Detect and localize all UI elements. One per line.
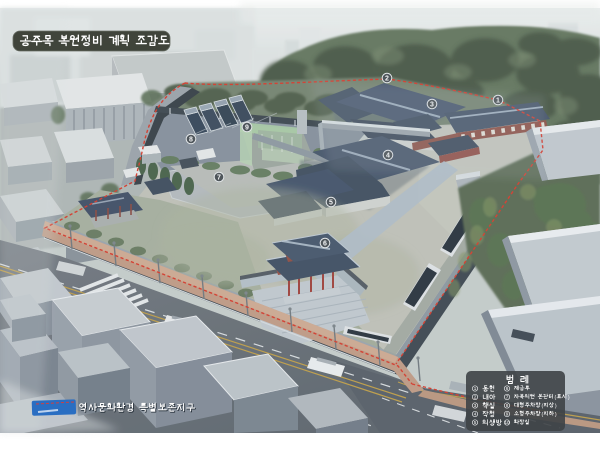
svg-text:9: 9 — [506, 412, 509, 417]
svg-text:1: 1 — [474, 386, 477, 391]
svg-text:2: 2 — [474, 395, 477, 400]
svg-text:3: 3 — [474, 403, 477, 408]
svg-text:(: ( — [542, 412, 544, 418]
svg-text:(: ( — [542, 404, 544, 410]
svg-text:): ) — [568, 395, 570, 401]
svg-text:5: 5 — [474, 420, 477, 425]
svg-text:6: 6 — [506, 386, 509, 391]
svg-text:): ) — [555, 412, 557, 418]
svg-text:): ) — [555, 404, 557, 410]
svg-text:8: 8 — [506, 403, 509, 408]
svg-text:7: 7 — [506, 395, 509, 400]
svg-text:10: 10 — [504, 420, 510, 425]
svg-text:4: 4 — [474, 412, 477, 417]
svg-text:(: ( — [555, 395, 557, 401]
